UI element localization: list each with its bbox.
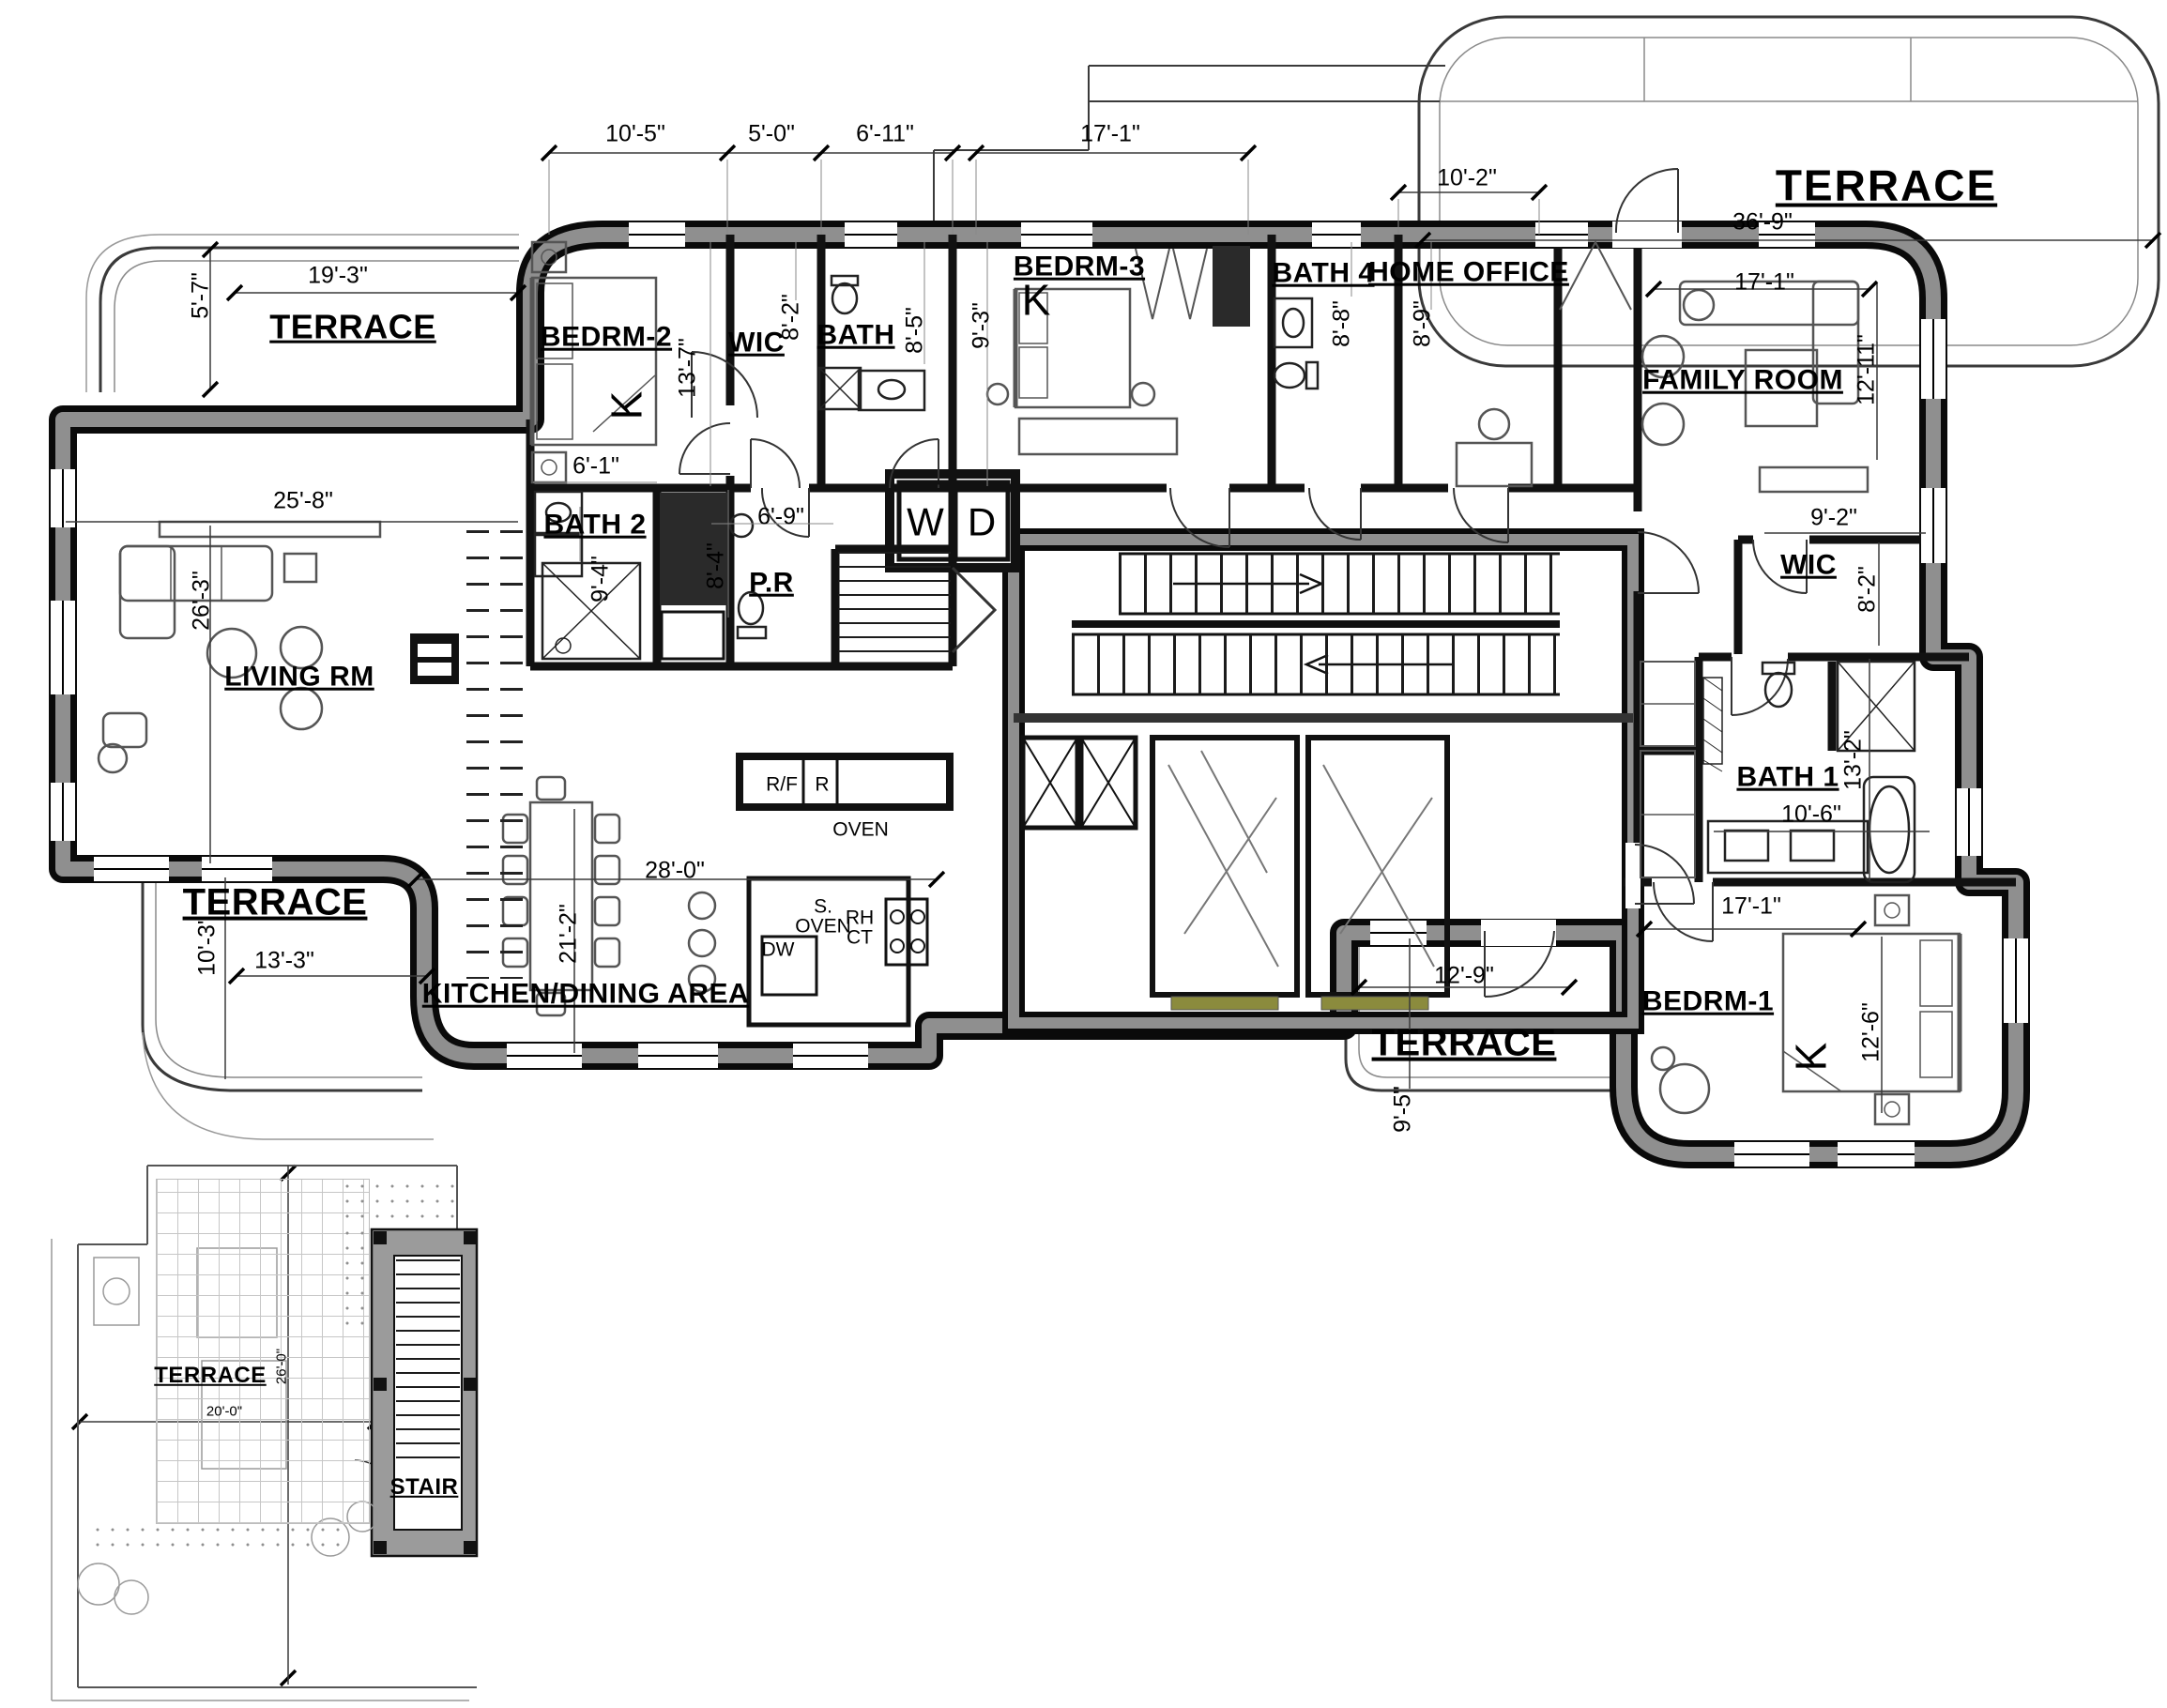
bath2-label: BATH 2 xyxy=(543,511,646,541)
inset-terrace-tile-grid xyxy=(156,1179,370,1524)
terrace-bottom-depth: 9'-5" xyxy=(1391,1086,1415,1133)
family-room-width: 17'-1" xyxy=(1734,270,1794,295)
inset-terrace-width: 20'-0" xyxy=(206,1404,242,1418)
dim-top-3: 6'-11" xyxy=(856,122,914,146)
bath1-width: 10'-6" xyxy=(1781,802,1841,827)
powder-room-label: P.R xyxy=(749,570,794,599)
wic1-width: 9'-2" xyxy=(1810,506,1857,530)
kitchen-width: 28'-0" xyxy=(645,859,705,883)
dim-top-2: 5'-0" xyxy=(748,122,795,146)
terrace-lower-left-depth: 10'-3" xyxy=(195,916,220,976)
inset-stair-label: STAIR xyxy=(390,1476,459,1499)
terrace-bottom-label: TERRACE xyxy=(1372,1025,1557,1063)
kitchen-fixtures xyxy=(740,756,950,1025)
terrace-lower-left-width: 13'-3" xyxy=(254,949,314,973)
private-stair-hatch xyxy=(838,552,951,663)
core-stair-run-lower xyxy=(1072,634,1560,694)
terrace-top-right-label: TERRACE xyxy=(1776,164,1997,208)
bedroom2-closet-width: 6'-1" xyxy=(572,454,619,479)
wic2-label: WIC xyxy=(728,329,785,358)
bath4-depth: 8'-8" xyxy=(1330,300,1354,347)
appliance-steam-oven-label: S. OVEN xyxy=(795,897,851,938)
appliance-range-hood-cooktop-label: RH CT xyxy=(846,908,874,949)
shelf-wall-hatch-left xyxy=(466,530,489,979)
dryer-label: D xyxy=(968,503,996,543)
inset-planting-strip-top xyxy=(340,1179,458,1222)
family-room-label: FAMILY ROOM xyxy=(1642,367,1843,396)
terrace-upper-left-depth: 5'-7" xyxy=(189,272,213,319)
core-stair-run-upper xyxy=(1119,554,1560,614)
appliance-dw-label: DW xyxy=(762,939,795,959)
powder-room-depth: 8'-4" xyxy=(704,542,728,589)
wic1-depth: 8'-2" xyxy=(1855,566,1880,613)
wic1-label: WIC xyxy=(1780,552,1837,581)
bath3-depth: 8'-5" xyxy=(903,307,927,354)
bedroom2-bed-size: K xyxy=(605,391,649,420)
terrace-bottom-width: 12'-9" xyxy=(1434,964,1494,988)
inset-planting-strip-right xyxy=(340,1226,366,1336)
terrace-upper-left-width: 19'-3" xyxy=(308,264,368,288)
bath2-depth: 9'-4" xyxy=(588,556,613,602)
kitchen-label: KITCHEN/DINING AREA xyxy=(422,981,749,1010)
terrace-upper-left-label: TERRACE xyxy=(269,311,436,345)
bath4-label: BATH 4 xyxy=(1272,260,1374,289)
washer-label: W xyxy=(907,503,944,543)
family-room-depth: 12'-11" xyxy=(1854,334,1879,405)
inset-planting-strip-bottom xyxy=(90,1522,349,1554)
kitchen-depth: 21'-2" xyxy=(557,904,581,964)
terrace-top-right-width: 36'-9" xyxy=(1732,210,1793,235)
dim-top-5: 10'-2" xyxy=(1437,166,1497,191)
home-office-label: HOME OFFICE xyxy=(1368,259,1569,288)
bedroom1-width: 17'-1" xyxy=(1721,894,1781,919)
bath3-label: BATH xyxy=(816,322,894,351)
floor-plan-canvas: 10'-5" 5'-0" 6'-11" 17'-1" 10'-2" TERRAC… xyxy=(0,0,2167,1708)
shelf-wall-hatch-right xyxy=(500,530,523,979)
inset-terrace-depth: 26'-0" xyxy=(274,1349,288,1384)
bedroom3-depth: 9'-3" xyxy=(969,302,994,349)
bedroom1-label: BEDRM-1 xyxy=(1642,988,1774,1017)
bedroom2-label: BEDRM-2 xyxy=(541,324,672,353)
appliance-r-label: R xyxy=(815,774,829,794)
bedroom3-bed-size: K xyxy=(1022,279,1051,323)
bedroom1-bed-size: K xyxy=(1790,1043,1834,1072)
wic2-depth: 8'-2" xyxy=(779,294,803,341)
inset-terrace-label: TERRACE xyxy=(154,1365,267,1387)
dim-top-4: 17'-1" xyxy=(1080,122,1140,146)
bath1-label: BATH 1 xyxy=(1736,764,1839,793)
dim-top-1: 10'-5" xyxy=(605,122,665,146)
inset-stair-treads xyxy=(396,1259,460,1461)
bath1-depth: 13'-2" xyxy=(1841,730,1866,790)
living-room-label: LIVING RM xyxy=(224,663,374,693)
bedroom1-depth: 12'-6" xyxy=(1859,1002,1884,1062)
living-room-width: 25'-8" xyxy=(273,489,333,513)
bedroom2-depth: 13'-7" xyxy=(676,338,700,398)
home-office-depth: 8'-9" xyxy=(1411,300,1435,347)
powder-room-width: 6'-9" xyxy=(757,505,804,529)
appliance-rf-label: R/F xyxy=(766,774,798,794)
living-room-depth: 26'-3" xyxy=(190,571,214,631)
appliance-oven-label: OVEN xyxy=(832,819,889,839)
